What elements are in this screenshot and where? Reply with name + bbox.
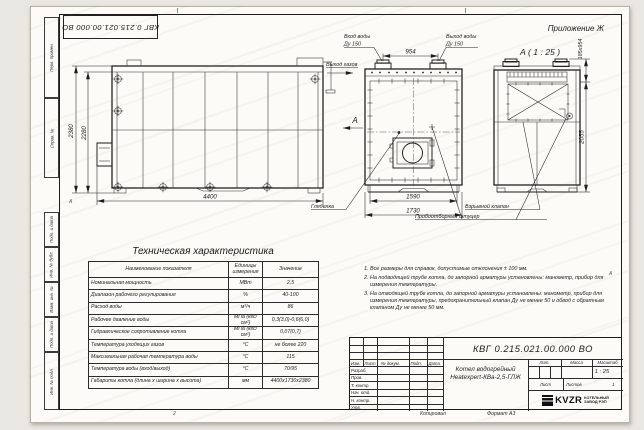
cell: Номинальная мощность (89, 278, 229, 290)
label-water-outlet-dn: Ду 150 (445, 42, 463, 48)
drawing-sheet: Перв. примен. Справ. № Подп. и дата Инв.… (0, 0, 644, 430)
tech-characteristics: Техническая характеристика Наименование … (88, 246, 318, 389)
side-column-inv-podl: Инв. № подл. (44, 352, 59, 410)
cell: не более 220 (263, 339, 319, 351)
cell: 115 (263, 352, 319, 364)
side-column-perv-primen: Перв. примен. (44, 17, 59, 98)
cell: Максимальная рабочая температура воды (89, 352, 229, 364)
label-water-inlet-dn: Ду 150 (343, 42, 361, 48)
side-column-label: Перв. примен. (49, 43, 54, 72)
cell: °С (229, 339, 263, 351)
tech-table: Наименование показателя Единицы измерени… (88, 261, 319, 389)
col-header-name: Наименование показателя (89, 262, 229, 278)
cell: 4400х1730х2380 (263, 376, 319, 388)
cell: °С (229, 364, 263, 376)
table-row: Максимальная рабочая температура воды°С1… (89, 352, 319, 364)
side-view: 2380 2280 4400 (68, 58, 335, 205)
label-sight-glass: Гляделка (311, 204, 334, 210)
water-inlet-flange (375, 63, 391, 69)
cell: Рабочее давление воды (89, 314, 229, 326)
cell: 40-100 (263, 290, 319, 302)
section-letter: А (351, 116, 357, 125)
doc-number: КВГ 0.215.021.00.000 ВО (443, 338, 623, 359)
row-prov: Пров. (351, 375, 362, 380)
cell: МВт (229, 278, 263, 290)
appendix-label: Приложение Ж (548, 24, 605, 33)
cell: °С (229, 352, 263, 364)
side-column-inv-dubl: Инв. № дубл. (44, 247, 59, 282)
row-tkontr: Т. контр. (351, 383, 370, 388)
format-label: Формат А3 (487, 411, 515, 417)
scale-value: 1 : 25 (581, 366, 623, 378)
sheet-label: Лист (528, 378, 563, 390)
cell: 0,07(0,7) (263, 327, 319, 339)
dim-954: 954 (405, 49, 416, 56)
mass-label: Масса (561, 359, 592, 366)
side-column-vzam-inv: Взам. инв. № (44, 282, 59, 317)
tech-table-title: Техническая характеристика (88, 246, 318, 257)
fold-mark (465, 8, 466, 13)
kvzr-logo-text: KVZR (555, 395, 582, 406)
side-column-podp-data-1: Подп. и дата (44, 212, 59, 247)
row-nkontr: Н. контр. (351, 398, 370, 403)
row-utv: Утв. (351, 405, 361, 410)
cell: 70/95 (263, 364, 319, 376)
table-row: Гидравлическое сопротивление котлаМПа (к… (89, 327, 319, 339)
table-row: Рабочее давление водыМПа (кгс/см²)0,3(3,… (89, 314, 319, 326)
water-outlet-flange (430, 63, 446, 69)
table-row: Температура уходящих газов°Сне более 220 (89, 339, 319, 351)
title-block: Изм. Лист № докум. Подп. Дата Разраб. Пр… (349, 337, 622, 410)
cell: Габариты котла (длина х ширина х высота) (89, 376, 229, 388)
label-sampling-fitting: Пробоотборный штуцер (415, 213, 480, 220)
tech-table-header-row: Наименование показателя Единицы измерени… (89, 262, 319, 278)
cell: Температура воды (вход/выход) (89, 364, 229, 376)
note-item: Все размеры для справок, допустимые откл… (370, 266, 617, 273)
explosion-valve-panel (507, 83, 570, 122)
copied-label: Копировал (420, 411, 446, 417)
boiler-drawing: Приложение Ж (60, 14, 622, 246)
cell: МПа (кгс/см²) (229, 327, 263, 339)
side-column-label: Инв. № подл. (49, 368, 54, 395)
note-item: На подводящей трубе котла, до запорной а… (370, 275, 617, 289)
scale-label: Масштаб (592, 359, 623, 366)
side-column-sprav-n: Справ. № (44, 98, 59, 178)
front-view: 954 Вход воды Ду 150 Выход воды Ду 150 В… (311, 34, 478, 219)
table-row: Номинальная мощностьМВт2,5 (89, 278, 319, 290)
kvzr-logo-icon (542, 395, 553, 406)
view-a-title: А ( 1 : 25 ) (519, 47, 560, 57)
notes: Все размеры для справок, допустимые откл… (357, 266, 617, 314)
side-column-label: Взам. инв. № (49, 286, 54, 313)
cell: % (229, 290, 263, 302)
side-column-podp-data-2: Подп. и дата (44, 317, 59, 352)
dim-2280: 2280 (81, 126, 88, 141)
table-row: Температура воды (вход/выход)°С70/95 (89, 364, 319, 376)
cell: Гидравлическое сопротивление котла (89, 327, 229, 339)
side-column-label: Подп. и дата (49, 216, 54, 243)
label-water-outlet: Выход воды (446, 34, 476, 40)
note-item: На отводящей трубе котла, до запорной ар… (370, 291, 617, 312)
product-name-line1: Котел водогрейный (456, 366, 516, 374)
cell: 2,5 (263, 278, 319, 290)
cell: м³/ч (229, 302, 263, 314)
cell: МПа (кгс/см²) (229, 314, 263, 326)
sheets-value: 1 (612, 382, 614, 387)
col-izm: Изм. (351, 361, 360, 366)
row-razrab: Разраб. (351, 368, 367, 373)
product-name: Котел водогрейный Heatexpert-КВа-2,5-ГЛЖ (443, 359, 528, 389)
cell: Температура уходящих газов (89, 339, 229, 351)
dim-2380: 2380 (68, 124, 75, 139)
cell: 86 (263, 302, 319, 314)
col-header-value: Значение (263, 262, 319, 278)
side-column-label: Справ. № (49, 128, 54, 148)
dim-1590: 1590 (406, 194, 420, 201)
sheets-label: Листов (566, 382, 582, 387)
col-docnum: № докум. (381, 361, 400, 366)
gas-outlet-flange (297, 58, 323, 66)
burner-opening (390, 138, 434, 168)
lit-label: Лит. (528, 359, 561, 366)
dim-2055: 2055 (579, 130, 586, 145)
col-data: Дата (429, 361, 440, 366)
top-band-bolts (371, 72, 457, 74)
side-column-label: Инв. № дубл. (49, 251, 54, 277)
company-name: КОТЕЛЬНЫЙ ЗАВОД РЭП (584, 396, 609, 405)
dim-4400: 4400 (203, 194, 217, 201)
cell: 0,3(3,0)-0,6(6,0) (263, 314, 319, 326)
table-row: Габариты котла (длина х ширина х высота)… (89, 376, 319, 388)
zone-mark-bottom: 2 (173, 411, 176, 417)
cell: Диапазон рабочего регулирования (89, 290, 229, 302)
col-header-units: Единицы измерения (229, 262, 263, 278)
table-row: Диапазон рабочего регулирования%40-100 (89, 290, 319, 302)
label-gas-outlet: Выход газов (326, 62, 358, 68)
fold-mark (177, 8, 178, 13)
company-name-line2: ЗАВОД РЭП (584, 400, 609, 404)
row-nachotd: Нач. отд. (351, 390, 370, 395)
col-list: Лист (365, 361, 376, 366)
company-logo: KVZR КОТЕЛЬНЫЙ ЗАВОД РЭП (528, 390, 623, 410)
product-name-line2: Heatexpert-КВа-2,5-ГЛЖ (450, 374, 521, 382)
collector-hatching (510, 73, 562, 77)
col-podp: Подп. (411, 361, 422, 366)
side-column-label: Подп. и дата (49, 321, 54, 348)
cell: Расход воды (89, 302, 229, 314)
label-water-inlet: Вход воды (344, 34, 370, 40)
cell: мм (229, 376, 263, 388)
label-explosion-valve: Взрывной клапан (465, 203, 509, 210)
table-row: Расход водым³/ч86 (89, 302, 319, 314)
rear-view: А ( 1 : 25 ) (415, 39, 590, 220)
dim-185x954: 185х954 (578, 39, 584, 60)
